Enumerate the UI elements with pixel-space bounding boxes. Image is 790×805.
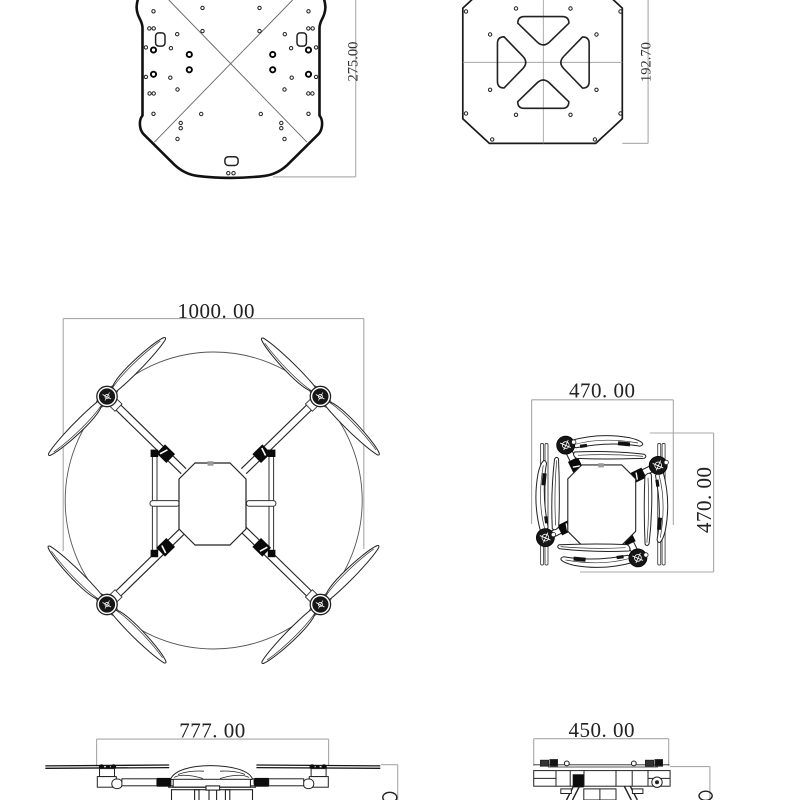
- svg-text:275.00: 275.00: [346, 42, 362, 82]
- svg-text:192.70: 192.70: [639, 42, 655, 82]
- svg-text:470. 00: 470. 00: [692, 467, 716, 534]
- svg-text:777. 00: 777. 00: [179, 718, 246, 742]
- svg-text:450. 00: 450. 00: [569, 718, 636, 742]
- svg-text:1000. 00: 1000. 00: [178, 299, 256, 323]
- svg-text:470. 00: 470. 00: [569, 379, 636, 403]
